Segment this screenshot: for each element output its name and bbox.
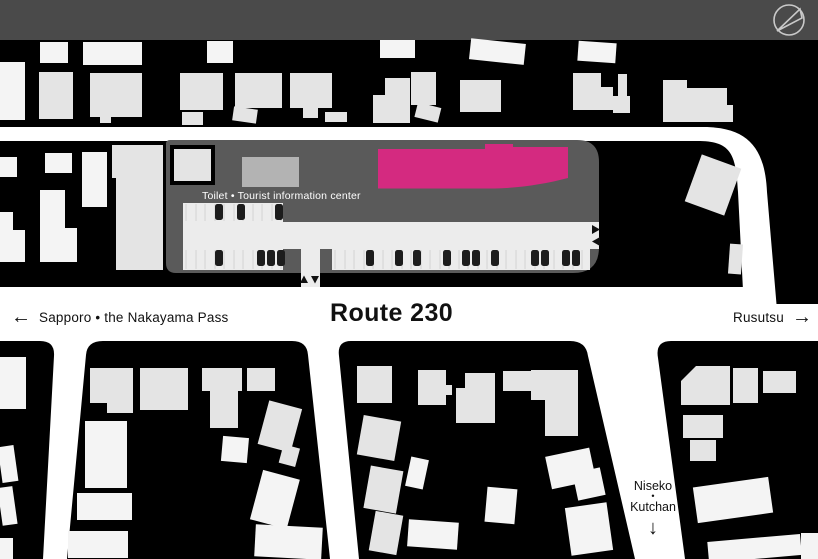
west-direction-label: ← Sapporo • the Nakayama Pass — [11, 304, 228, 330]
site-outbuilding — [172, 147, 213, 183]
west-direction-text: Sapporo • the Nakayama Pass — [39, 310, 228, 325]
building — [40, 42, 68, 63]
building — [465, 373, 495, 388]
building — [618, 74, 627, 98]
parking-car — [257, 250, 265, 266]
building — [85, 421, 127, 488]
building — [687, 88, 727, 122]
building — [456, 388, 495, 423]
building — [801, 533, 818, 559]
parking-car — [472, 250, 480, 266]
tourist-center-building — [242, 157, 299, 187]
building — [484, 487, 517, 524]
building — [40, 190, 65, 230]
building — [380, 40, 415, 58]
site-label: Toilet • Tourist information center — [202, 190, 361, 202]
building — [140, 368, 188, 410]
building — [82, 152, 107, 207]
building — [663, 80, 687, 122]
route-230-label: Route 230 — [330, 299, 453, 328]
building — [107, 403, 133, 413]
parking-car — [572, 250, 580, 266]
building — [180, 73, 223, 110]
building — [357, 415, 401, 461]
parking-car — [531, 250, 539, 266]
building — [39, 72, 73, 119]
building — [235, 73, 282, 108]
parking-car — [413, 250, 421, 266]
building — [116, 178, 163, 270]
building — [45, 153, 72, 173]
building — [90, 368, 133, 403]
south-direction-label: Niseko • Kutchan ↓ — [622, 479, 684, 538]
building — [182, 112, 203, 125]
building — [407, 519, 459, 549]
building — [385, 78, 410, 95]
building — [90, 73, 142, 117]
building — [573, 87, 613, 110]
building — [763, 371, 796, 393]
parking-car — [462, 250, 470, 266]
building — [221, 436, 249, 463]
parking-aisle — [183, 222, 599, 249]
east-direction-label: Rusutsu → — [733, 304, 812, 330]
south-arrow-icon: ↓ — [622, 518, 684, 538]
building — [210, 391, 238, 428]
highlight-building — [378, 144, 568, 189]
parking-car — [215, 204, 223, 220]
building — [460, 80, 501, 112]
parking-car — [491, 250, 499, 266]
parking-car — [562, 250, 570, 266]
building — [202, 368, 242, 391]
building — [77, 493, 132, 520]
building — [613, 96, 630, 113]
building — [100, 117, 111, 123]
building — [727, 105, 733, 122]
east-direction-text: Rusutsu — [733, 310, 784, 325]
building — [0, 62, 25, 120]
west-arrow-icon: ← — [11, 307, 31, 327]
top-bar — [0, 0, 818, 40]
building — [0, 230, 25, 262]
parking-car — [395, 250, 403, 266]
south-direction-dot: • — [622, 493, 684, 500]
building — [357, 366, 392, 403]
building — [112, 145, 163, 178]
building — [0, 357, 26, 409]
building — [254, 524, 323, 559]
building — [373, 95, 410, 123]
east-arrow-icon: → — [792, 307, 812, 327]
parking-car — [366, 250, 374, 266]
parking-car — [443, 250, 451, 266]
building — [83, 42, 142, 65]
building — [303, 108, 318, 118]
building — [441, 385, 452, 395]
building — [733, 368, 758, 403]
building — [325, 112, 347, 122]
map-graphics — [0, 0, 818, 559]
building — [0, 212, 13, 230]
building — [577, 41, 616, 64]
map-canvas: Toilet • Tourist information center ← Sa… — [0, 0, 818, 559]
building — [68, 531, 128, 558]
building — [0, 538, 13, 559]
parking-car — [215, 250, 223, 266]
building — [690, 440, 716, 461]
building — [40, 228, 77, 262]
parking-car — [237, 204, 245, 220]
building — [0, 157, 17, 177]
building — [565, 502, 613, 555]
building — [247, 368, 275, 391]
building — [572, 467, 605, 500]
building — [411, 72, 436, 105]
building — [207, 41, 233, 63]
south-direction-text-line2: Kutchan — [622, 500, 684, 514]
parking-car — [541, 250, 549, 266]
building — [531, 370, 578, 400]
building — [545, 400, 578, 436]
parking-car — [267, 250, 275, 266]
parking-car — [277, 250, 285, 266]
building — [683, 415, 723, 438]
parking-car — [275, 204, 283, 220]
building — [290, 73, 332, 108]
building — [728, 244, 743, 275]
